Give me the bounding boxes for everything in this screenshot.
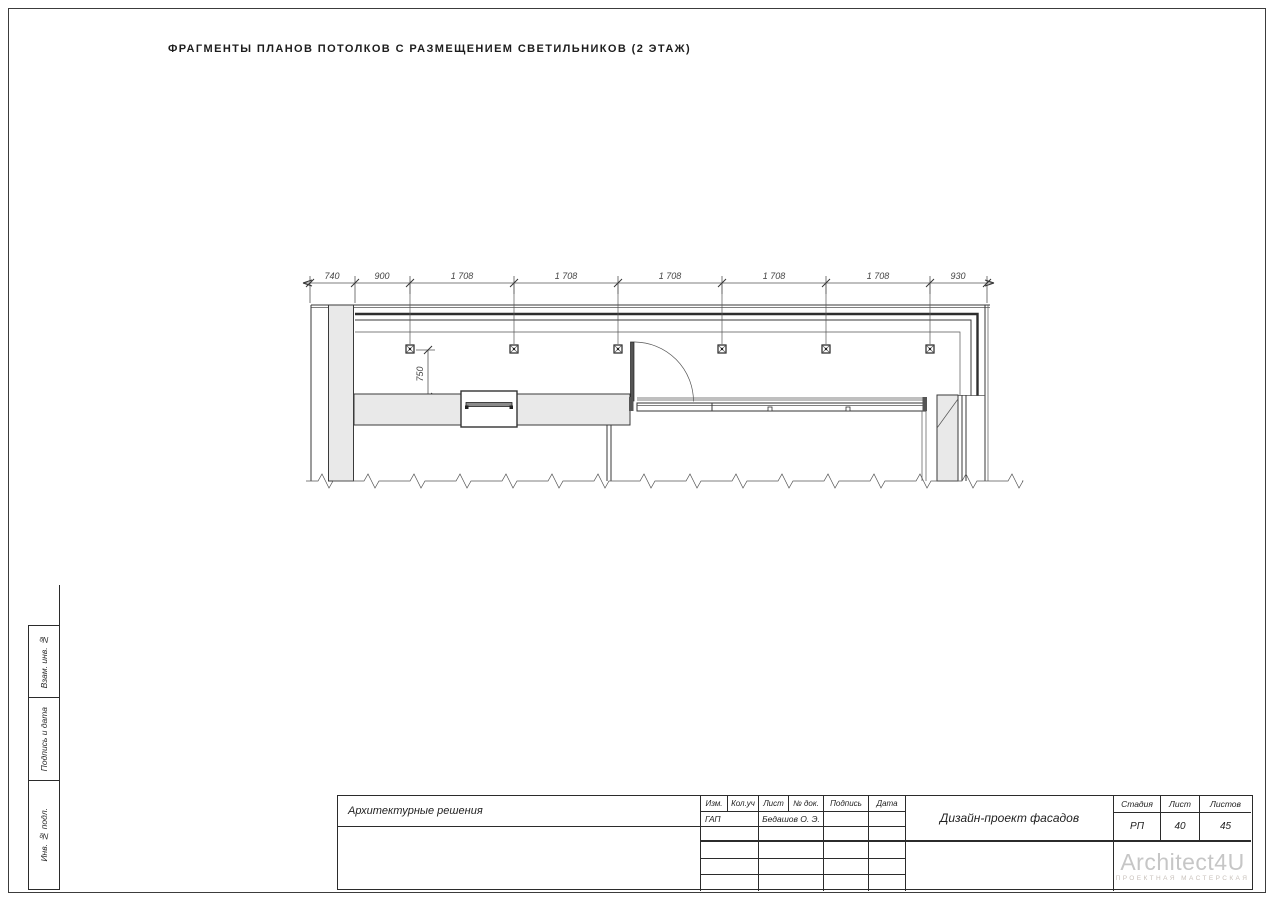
light-fixture: [510, 283, 518, 353]
side-stamp-label: Инв. № подл.: [39, 808, 49, 862]
window-jamb: [629, 397, 634, 411]
sheets-header: Листов: [1200, 796, 1251, 813]
logo-subtitle: ПРОЕКТНАЯ МАСТЕРСКАЯ: [1116, 876, 1250, 883]
empty-cell: [701, 842, 759, 859]
side-stamp-label: Подпись и дата: [39, 707, 49, 771]
dim-label: 1 708: [867, 271, 890, 281]
side-stamp-label: Взам. инв. №: [39, 635, 49, 688]
col-header-data: Дата: [869, 796, 906, 812]
side-stamp-cell: Взам. инв. №: [29, 626, 59, 698]
empty-cell: [759, 859, 824, 875]
empty-cell: [824, 859, 869, 875]
light-fixture: [406, 283, 414, 353]
empty-cell: [759, 875, 824, 891]
logo-text: Architect4U: [1120, 851, 1244, 874]
window-mullion: [846, 407, 850, 411]
col-header-dok: № док.: [789, 796, 824, 812]
dim-label: 1 708: [555, 271, 578, 281]
dimension-vertical-750: 750: [415, 346, 435, 401]
section-name-cell: Архитектурные решения: [338, 796, 701, 827]
side-stamp-cell: Подпись и дата: [29, 698, 59, 781]
ceiling-plan-drawing: 740 900 1 708 1 708 1 708 1 708 1 708 93…: [285, 248, 1050, 498]
niche: [461, 391, 517, 427]
empty-cell: [701, 859, 759, 875]
wall-lower-left: [354, 391, 630, 481]
empty-cell: [869, 875, 906, 891]
break-line: [306, 474, 1023, 488]
light-fixture: [614, 283, 622, 353]
dim-label: 930: [950, 271, 965, 281]
window: [629, 397, 927, 481]
light-fixture: [822, 283, 830, 353]
dim-label-vertical: 750: [415, 366, 425, 381]
dim-label: 1 708: [763, 271, 786, 281]
wall-right: [937, 395, 985, 481]
radiator-bar: [466, 403, 512, 407]
empty-cell: [824, 842, 869, 859]
ceiling-edge-lines: [311, 305, 990, 481]
empty-cell: [824, 875, 869, 891]
empty-cell: [759, 827, 824, 842]
empty-cell: [869, 827, 906, 842]
empty-cell: [869, 842, 906, 859]
empty-cell: [701, 875, 759, 891]
side-stamp-extension-line: [59, 585, 60, 625]
title-block: Архитектурные решения Изм. Кол.уч Лист №…: [337, 795, 1253, 890]
dim-label: 740: [324, 271, 339, 281]
wall-left: [311, 305, 354, 481]
door: [631, 342, 694, 402]
col-header-koluch: Кол.уч: [728, 796, 759, 812]
dimension-chain-horizontal: 740 900 1 708 1 708 1 708 1 708 1 708 93…: [303, 271, 994, 303]
role-cell: ГАП: [701, 812, 759, 827]
stage-value: РП: [1114, 813, 1161, 842]
date-cell: [869, 812, 906, 827]
col-header-list: Лист: [759, 796, 789, 812]
empty-cell: [759, 842, 824, 859]
window-mullion: [768, 407, 772, 411]
empty-cell: [824, 827, 869, 842]
sheet-header: Лист: [1161, 796, 1200, 813]
project-name-cell: Дизайн-проект фасадов: [906, 796, 1114, 842]
empty-cell: [338, 827, 701, 891]
dim-label: 1 708: [659, 271, 682, 281]
sheets-total: 45: [1200, 813, 1251, 842]
dim-label: 900: [374, 271, 389, 281]
page-title: ФРАГМЕНТЫ ПЛАНОВ ПОТОЛКОВ С РАЗМЕЩЕНИЕМ …: [168, 43, 691, 55]
col-header-podpis: Подпись: [824, 796, 869, 812]
side-stamp-cell: Инв. № подл.: [29, 781, 59, 888]
col-header-izm: Изм.: [701, 796, 728, 812]
dim-label: 1 708: [451, 271, 474, 281]
light-fixture: [718, 283, 726, 353]
empty-cell: [869, 859, 906, 875]
side-stamp: Взам. инв. № Подпись и дата Инв. № подл.: [28, 625, 60, 890]
name-cell: Бедашов О. Э.: [759, 812, 824, 827]
light-fixture: [926, 283, 934, 353]
stage-header: Стадия: [1114, 796, 1161, 813]
empty-cell: [906, 842, 1114, 891]
drawing-sheet: ФРАГМЕНТЫ ПЛАНОВ ПОТОЛКОВ С РАЗМЕЩЕНИЕМ …: [0, 0, 1273, 900]
window-jamb: [923, 397, 928, 411]
light-fixtures: [406, 283, 934, 353]
sheet-number: 40: [1161, 813, 1200, 842]
empty-cell: [701, 827, 759, 842]
signature-cell: [824, 812, 869, 827]
company-logo: Architect4U ПРОЕКТНАЯ МАСТЕРСКАЯ: [1114, 842, 1251, 891]
